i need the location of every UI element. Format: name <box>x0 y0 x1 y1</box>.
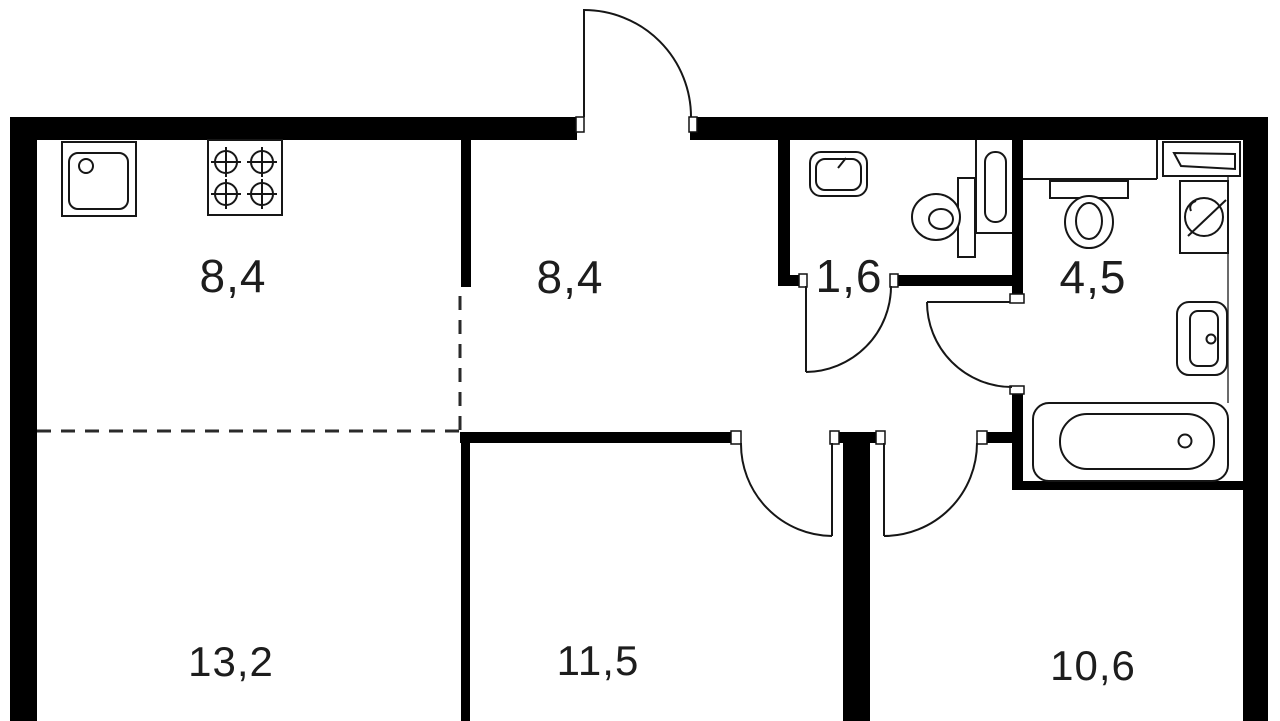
room-label-bedroom: 11,5 <box>557 637 640 685</box>
living-bedroom-divider-wall <box>461 443 470 721</box>
wc-bottom-wall-right <box>897 275 1023 286</box>
room-label-kitchen: 8,4 <box>200 249 267 303</box>
washing-machine-icon <box>1180 181 1228 253</box>
shelf-icon <box>1163 142 1240 176</box>
bedroom-door-frame-right <box>830 431 839 444</box>
bedroom-2-door-swing-arc <box>884 443 977 536</box>
bedroom2-door-frame-left <box>876 431 885 444</box>
bathroom-left-wall-upper <box>1012 138 1023 296</box>
hall-stub-wall <box>987 432 1013 443</box>
entrance-door-frame-right <box>689 117 697 132</box>
doors <box>584 9 1012 536</box>
bathroom-bottom-wall <box>1012 481 1247 490</box>
zoning-dashed-lines <box>37 296 460 431</box>
bathroom-washbasin-icon <box>1177 302 1227 375</box>
wc-door-frame-left <box>799 274 807 287</box>
room-label-bathroom: 4,5 <box>1060 250 1127 304</box>
bedroom-2-door <box>884 443 977 536</box>
room-label-bedroom-2: 10,6 <box>1050 642 1136 690</box>
wc-door-frame-right <box>890 274 898 287</box>
bathroom-door-swing-arc <box>927 302 1012 387</box>
bathroom-left-wall-lower <box>1012 393 1023 490</box>
bedroom-door-swing-arc <box>741 443 832 536</box>
top-wall-left <box>10 117 577 140</box>
central-vertical-wall <box>843 432 870 721</box>
wc-toilet-icon <box>912 178 975 257</box>
top-wall-right <box>690 117 1268 140</box>
right-exterior-wall <box>1243 117 1268 721</box>
entrance-door-swing-arc <box>584 10 691 117</box>
wc-washbasin-icon <box>810 152 867 196</box>
bedroom-door <box>741 443 832 536</box>
stove-icon <box>208 140 282 215</box>
left-exterior-wall <box>10 117 37 721</box>
kitchen-hall-divider-wall <box>461 138 471 287</box>
bathroom-door-frame-bottom <box>1010 386 1024 394</box>
mid-horizontal-wall <box>460 432 732 443</box>
hall-wc-divider-wall <box>778 138 790 286</box>
floor-plan-drawing <box>0 0 1280 721</box>
floor-plan: 8,4 8,4 1,6 4,5 13,2 11,5 10,6 <box>0 0 1280 721</box>
bedroom2-door-frame-right <box>977 431 987 444</box>
room-label-living: 13,2 <box>188 638 274 686</box>
kitchen-sink-icon <box>62 142 136 216</box>
bedroom-door-frame-left <box>731 431 741 444</box>
entrance-door <box>584 9 691 117</box>
room-label-wc: 1,6 <box>816 249 883 303</box>
heated-towel-rail-icon <box>976 140 1012 233</box>
bathroom-toilet-icon <box>1050 181 1128 248</box>
entrance-door-frame-left <box>576 117 584 132</box>
bathtub-icon <box>1033 403 1228 481</box>
bathroom-door-frame-top <box>1010 294 1024 303</box>
bathroom-door <box>927 302 1012 387</box>
room-label-hallway: 8,4 <box>537 250 604 304</box>
